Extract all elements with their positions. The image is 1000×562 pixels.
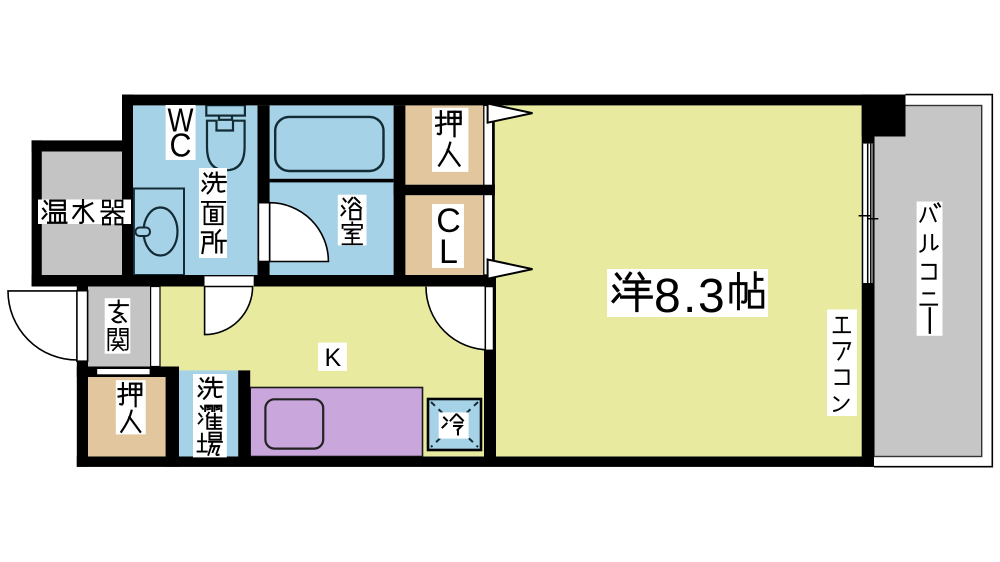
svg-text:C: C [170, 127, 192, 164]
svg-text:8: 8 [654, 270, 681, 323]
svg-text:L: L [439, 233, 458, 271]
svg-text:3: 3 [698, 270, 725, 323]
svg-text:.: . [683, 270, 696, 323]
svg-text:K: K [324, 344, 341, 372]
